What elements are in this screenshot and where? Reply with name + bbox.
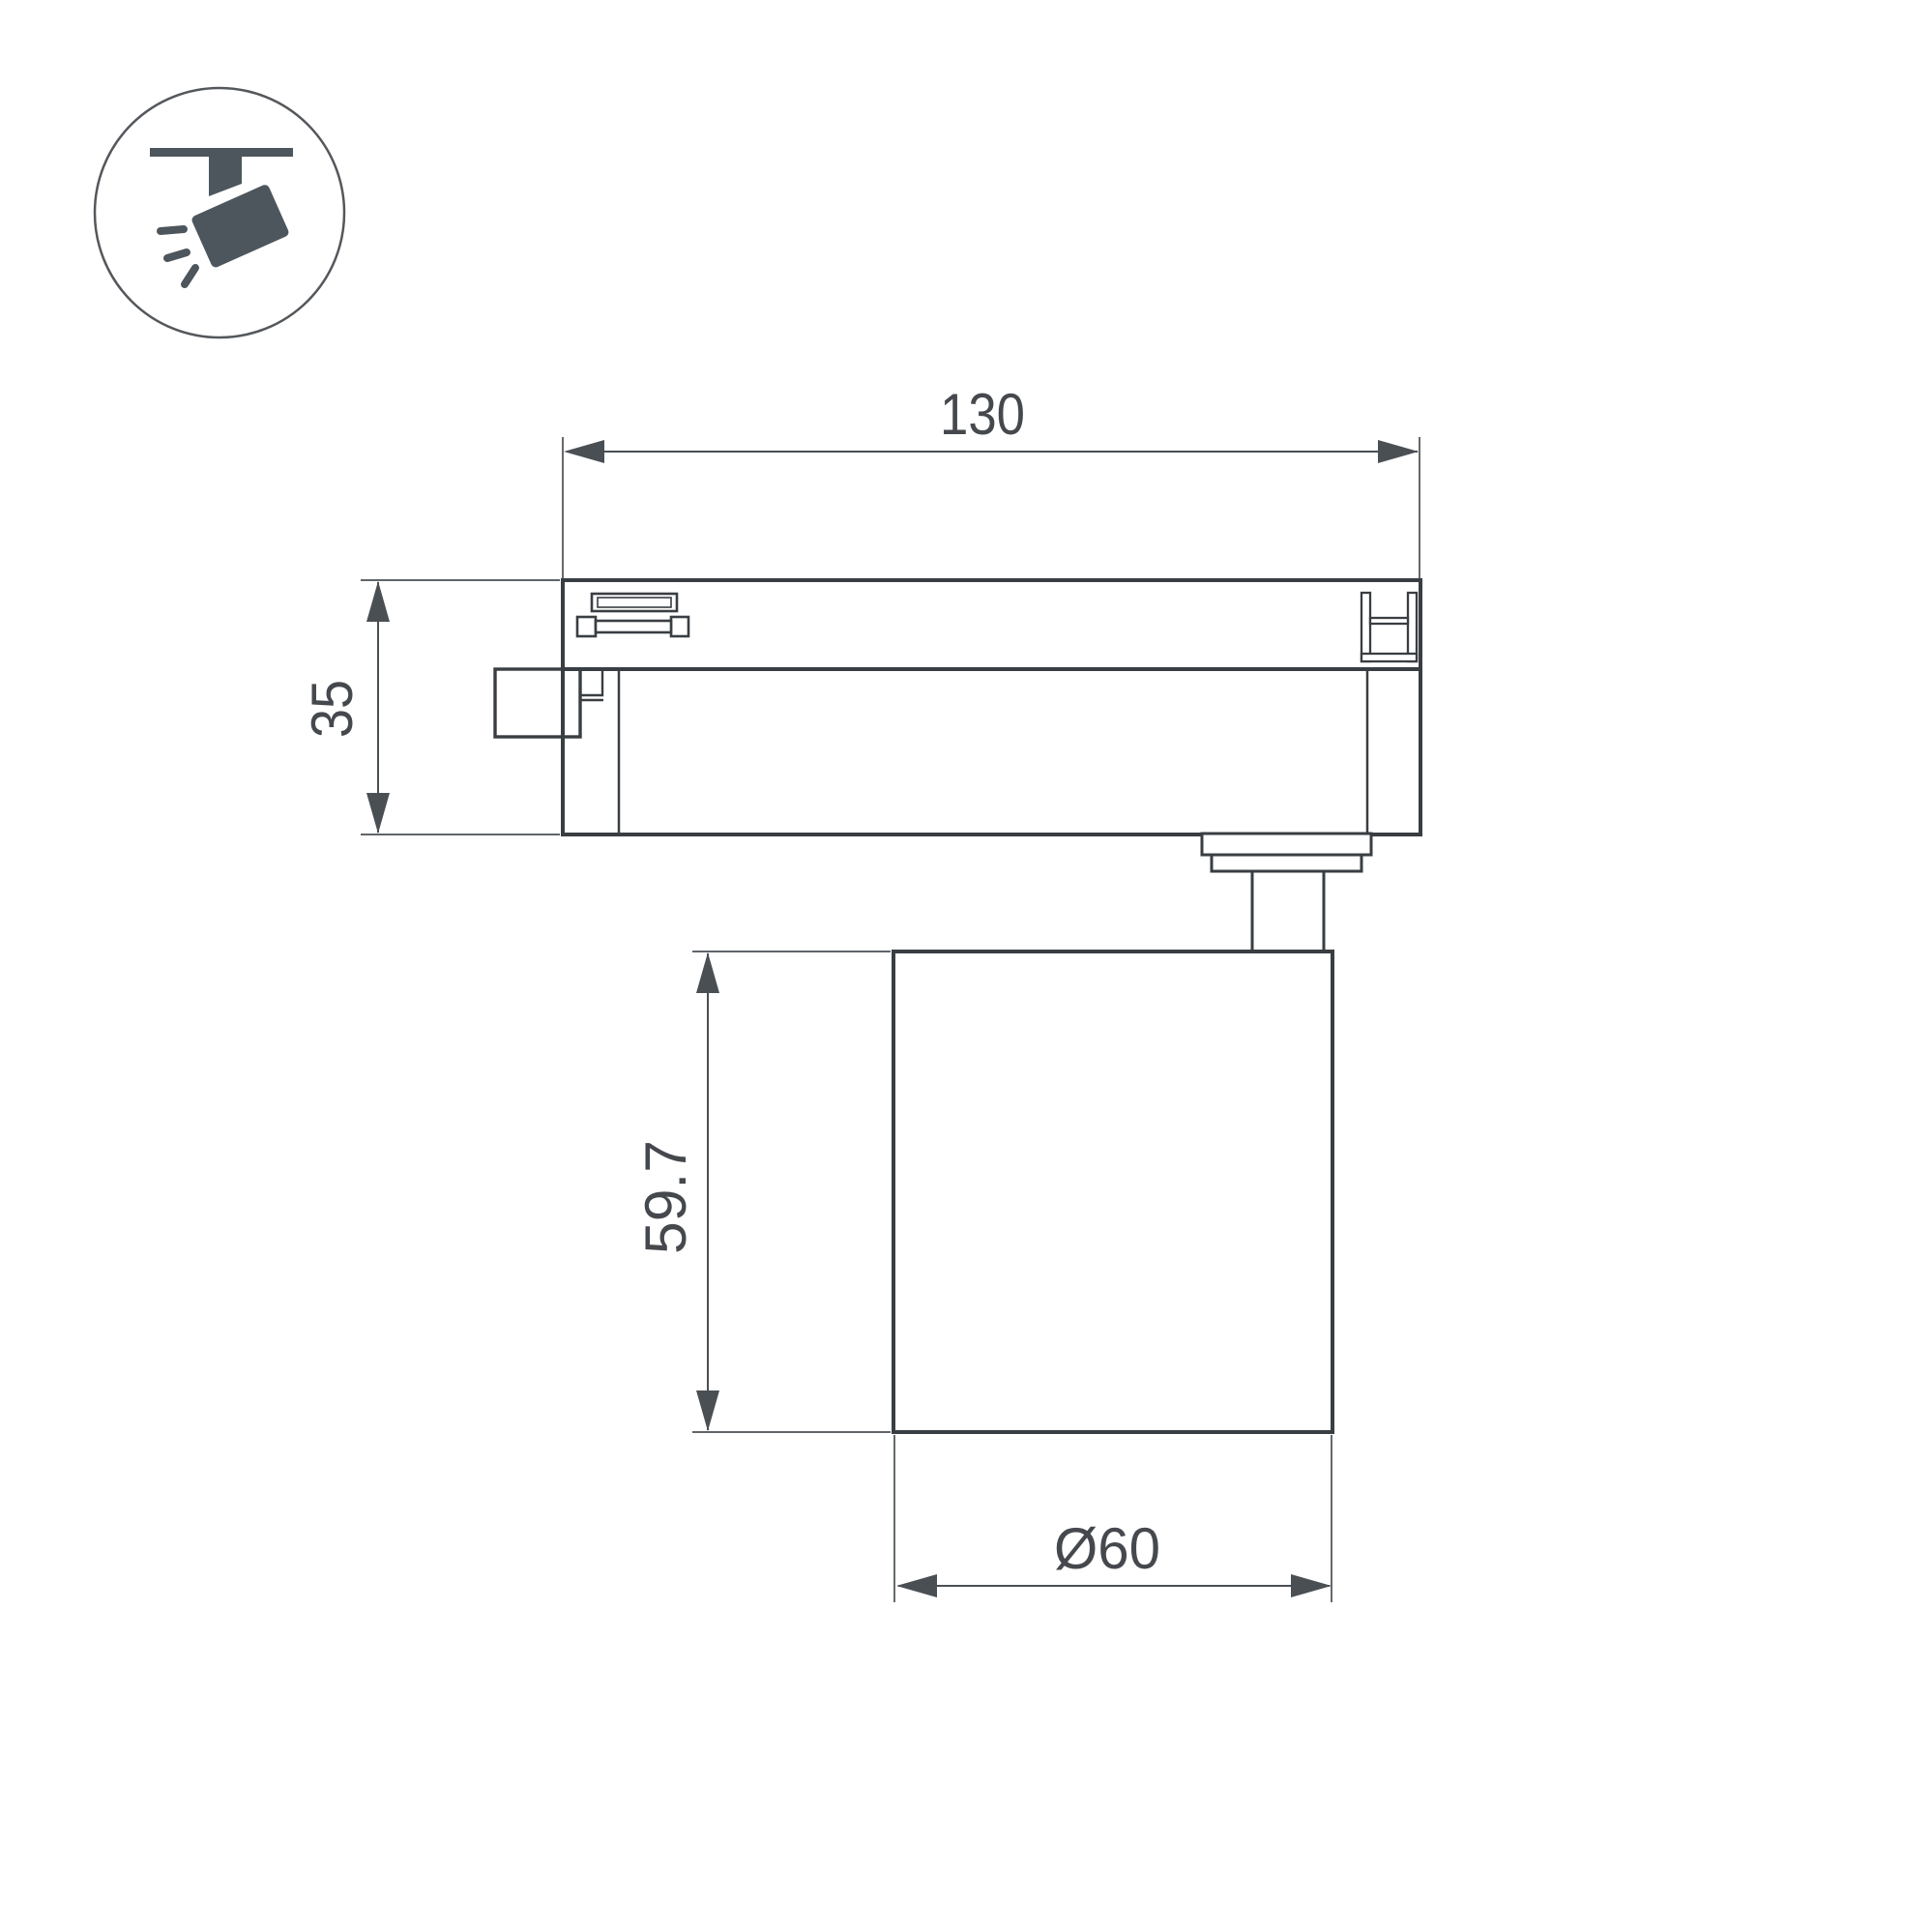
adapter-top-slab	[563, 580, 1420, 669]
technical-drawing-page: 130 35 59.7 Ø60	[0, 0, 1932, 1932]
contact-clip-lower	[577, 617, 688, 636]
arrowhead-left	[564, 440, 604, 463]
icon-track-bar	[150, 148, 293, 157]
dimension-adapter-height: 35	[300, 581, 390, 834]
dimension-lamp-diameter: Ø60	[896, 1516, 1332, 1597]
dim-lamp-height-label: 59.7	[633, 1140, 698, 1254]
arrowhead-right	[1291, 1574, 1332, 1597]
contact-clip-upper	[592, 594, 677, 611]
arrowhead-right	[1378, 440, 1419, 463]
dimension-lamp-height: 59.7	[633, 952, 719, 1431]
arrowhead-left	[896, 1574, 937, 1597]
drawing-canvas: 130 35 59.7 Ø60	[0, 0, 1932, 1932]
arrowhead-top	[696, 952, 719, 993]
pivot-stem	[1252, 871, 1324, 951]
dim-track-width-label: 130	[940, 382, 1025, 447]
adapter-gearbox	[563, 669, 1420, 834]
lamp-body	[893, 951, 1332, 1432]
arrowhead-top	[366, 581, 390, 622]
track-adapter-view	[495, 580, 1420, 951]
track-spotlight-icon	[95, 88, 344, 337]
arrowhead-bottom	[366, 793, 390, 834]
pivot-step-2	[1212, 855, 1361, 871]
dimension-track-width: 130	[564, 382, 1419, 463]
dim-lamp-diameter-label: Ø60	[1054, 1516, 1160, 1581]
pivot-step-1	[1202, 834, 1371, 855]
dim-adapter-height-label: 35	[300, 680, 365, 738]
arrowhead-bottom	[696, 1390, 719, 1431]
